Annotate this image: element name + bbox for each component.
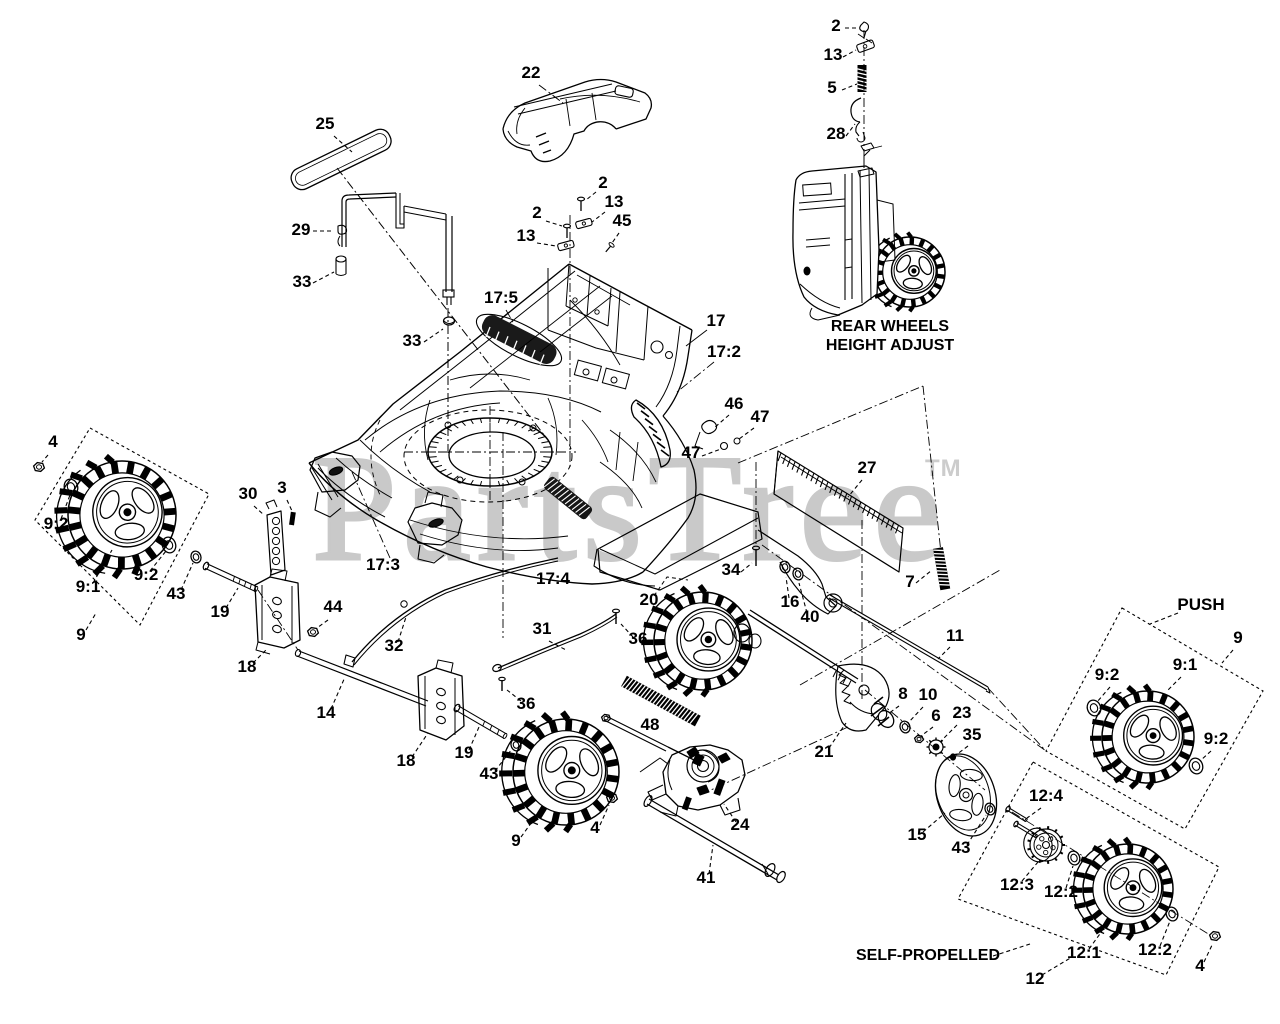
svg-text:12:2: 12:2 [1138, 940, 1172, 959]
svg-text:2: 2 [831, 16, 840, 35]
svg-text:PartsTree: PartsTree [312, 424, 948, 592]
svg-text:8: 8 [898, 684, 907, 703]
svg-text:5: 5 [827, 78, 836, 97]
svg-text:17:2: 17:2 [707, 342, 741, 361]
svg-text:2: 2 [598, 173, 607, 192]
svg-text:REAR WHEELS: REAR WHEELS [831, 318, 950, 335]
svg-text:12:4: 12:4 [1029, 786, 1064, 805]
svg-text:43: 43 [480, 764, 499, 783]
svg-text:9:2: 9:2 [44, 514, 69, 533]
svg-text:12:3: 12:3 [1000, 875, 1034, 894]
svg-text:45: 45 [613, 211, 632, 230]
svg-text:6: 6 [931, 706, 940, 725]
svg-text:30: 30 [239, 484, 258, 503]
svg-text:HEIGHT ADJUST: HEIGHT ADJUST [826, 337, 955, 354]
svg-text:17:4: 17:4 [536, 569, 571, 588]
svg-text:19: 19 [211, 602, 230, 621]
svg-text:33: 33 [293, 272, 312, 291]
svg-text:33: 33 [403, 331, 422, 350]
svg-text:14: 14 [317, 703, 336, 722]
svg-text:9:1: 9:1 [1173, 655, 1198, 674]
svg-text:19: 19 [455, 743, 474, 762]
svg-text:18: 18 [397, 751, 416, 770]
svg-text:3: 3 [277, 478, 286, 497]
svg-text:35: 35 [963, 725, 982, 744]
svg-text:18: 18 [238, 657, 257, 676]
svg-text:PUSH: PUSH [1177, 595, 1224, 614]
svg-text:11: 11 [946, 626, 964, 645]
svg-text:44: 44 [324, 597, 343, 616]
svg-text:41: 41 [697, 868, 716, 887]
svg-text:9:1: 9:1 [76, 577, 101, 596]
svg-text:46: 46 [725, 394, 744, 413]
svg-text:34: 34 [722, 560, 741, 579]
svg-text:17:3: 17:3 [366, 555, 400, 574]
svg-text:16: 16 [781, 592, 800, 611]
svg-text:31: 31 [533, 619, 552, 638]
svg-text:28: 28 [827, 124, 846, 143]
svg-text:12: 12 [1026, 969, 1045, 988]
svg-text:2: 2 [532, 203, 541, 222]
svg-text:13: 13 [824, 45, 843, 64]
svg-text:10: 10 [919, 685, 938, 704]
svg-text:9:2: 9:2 [134, 565, 159, 584]
svg-text:9: 9 [1233, 628, 1242, 647]
svg-text:SELF-PROPELLED: SELF-PROPELLED [856, 947, 1000, 964]
svg-text:23: 23 [953, 703, 972, 722]
svg-text:22: 22 [522, 63, 541, 82]
svg-text:27: 27 [858, 458, 877, 477]
svg-text:4: 4 [1195, 956, 1205, 975]
svg-text:15: 15 [908, 825, 927, 844]
svg-text:4: 4 [590, 818, 600, 837]
svg-text:25: 25 [316, 114, 335, 133]
svg-text:47: 47 [682, 443, 701, 462]
svg-text:13: 13 [517, 226, 536, 245]
svg-text:17:5: 17:5 [484, 288, 518, 307]
svg-text:36: 36 [517, 694, 536, 713]
svg-text:13: 13 [605, 192, 624, 211]
svg-text:9: 9 [511, 831, 520, 850]
svg-text:7: 7 [905, 572, 914, 591]
svg-text:43: 43 [952, 838, 971, 857]
svg-text:12:1: 12:1 [1067, 943, 1101, 962]
svg-text:17: 17 [707, 311, 726, 330]
svg-text:9: 9 [76, 625, 85, 644]
svg-text:9:2: 9:2 [1095, 665, 1120, 684]
svg-text:29: 29 [292, 220, 311, 239]
svg-text:12:2: 12:2 [1044, 882, 1078, 901]
svg-text:32: 32 [385, 636, 404, 655]
svg-text:40: 40 [801, 607, 820, 626]
svg-text:48: 48 [641, 715, 660, 734]
svg-text:4: 4 [48, 432, 58, 451]
svg-text:24: 24 [731, 815, 750, 834]
svg-text:47: 47 [751, 407, 770, 426]
svg-text:9:2: 9:2 [1204, 729, 1229, 748]
